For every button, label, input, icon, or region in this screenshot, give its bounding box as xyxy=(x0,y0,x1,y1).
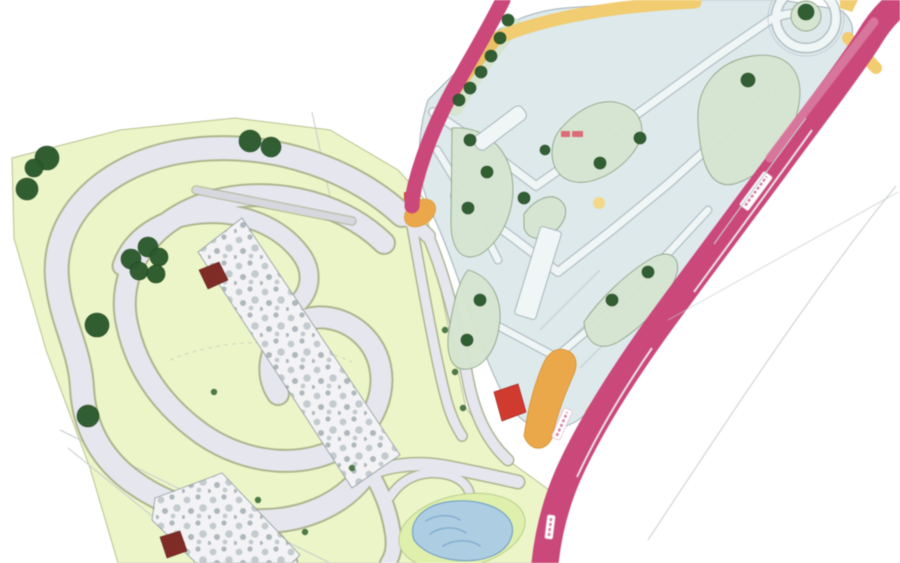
yellow-dot xyxy=(593,197,605,209)
tree-icon xyxy=(150,248,168,266)
tree-icon xyxy=(741,73,755,87)
red-label-mark xyxy=(572,131,583,137)
tree-icon xyxy=(502,14,514,26)
tree-icon xyxy=(464,82,476,94)
shrub-icon xyxy=(460,405,466,411)
tree-icon xyxy=(464,134,476,146)
tree-icon xyxy=(475,66,487,78)
tree-icon xyxy=(634,132,646,144)
shrub-icon xyxy=(255,497,261,503)
tree-icon xyxy=(16,178,38,200)
tree-icon xyxy=(462,202,474,214)
tree-icon xyxy=(474,294,486,306)
tree-icon xyxy=(642,266,654,278)
tree-icon xyxy=(481,166,493,178)
tree-icon xyxy=(25,159,43,177)
shrub-icon xyxy=(302,529,308,535)
shrub-icon xyxy=(349,465,355,471)
tree-icon xyxy=(147,265,165,283)
tree-icon xyxy=(453,94,465,106)
tree-icon xyxy=(485,50,497,62)
tree-icon xyxy=(494,32,506,44)
site-plan-viewport xyxy=(0,0,900,563)
tree-icon xyxy=(261,137,281,157)
tree-icon xyxy=(594,157,606,169)
red-label-mark xyxy=(561,131,570,137)
yellow-dots xyxy=(593,197,605,209)
tree-icon xyxy=(239,130,261,152)
shrub-icon xyxy=(452,369,458,375)
shrub-icon xyxy=(442,327,448,333)
tree-icon xyxy=(77,405,99,427)
tree-icon xyxy=(540,145,550,155)
tree-icon xyxy=(798,4,814,20)
site-plan-map xyxy=(0,0,900,563)
building-label-marks xyxy=(561,131,583,137)
tree-icon xyxy=(85,313,109,337)
shrub-icon xyxy=(211,389,217,395)
tree-icon xyxy=(461,334,473,346)
tree-icon xyxy=(606,294,618,306)
tree-icon xyxy=(518,192,530,204)
tree-icon xyxy=(130,262,148,280)
